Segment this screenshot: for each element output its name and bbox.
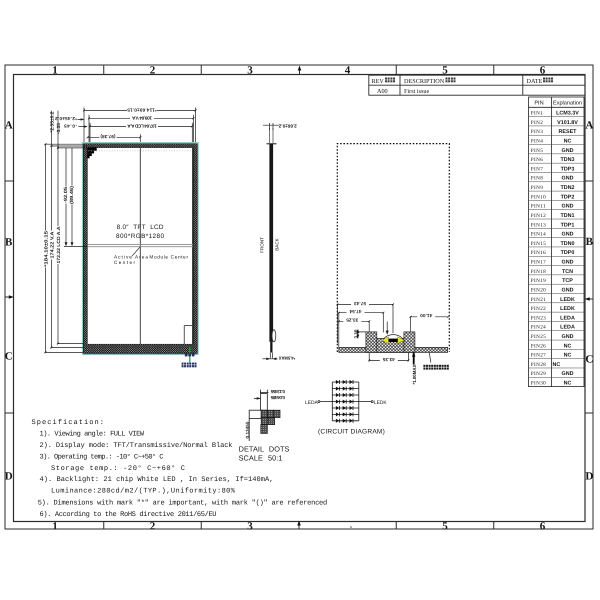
svg-text:8.0″ TFT LCD: 8.0″ TFT LCD <box>117 224 164 231</box>
svg-text:*2.35±0.2: *2.35±0.2 <box>49 111 54 132</box>
svg-text:PIN2: PIN2 <box>531 120 543 126</box>
svg-text:B: B <box>5 237 13 249</box>
svg-text:PIN13: PIN13 <box>531 222 546 228</box>
svg-text:0.13455: 0.13455 <box>245 421 250 438</box>
svg-text:PIN15: PIN15 <box>531 241 546 247</box>
svg-text:PIN4: PIN4 <box>531 138 543 144</box>
svg-text:LEDA: LEDA <box>560 315 575 321</box>
svg-text:TDP1: TDP1 <box>561 222 575 228</box>
svg-text:-0.45: -0.45 <box>64 123 77 128</box>
svg-text:PIN: PIN <box>534 101 543 107</box>
svg-text:PIN25: PIN25 <box>531 334 546 340</box>
svg-text:NC: NC <box>564 138 572 144</box>
svg-text:NC: NC <box>553 362 561 368</box>
svg-text:PIN6: PIN6 <box>531 157 543 163</box>
svg-text:PIN22: PIN22 <box>531 306 546 312</box>
svg-text:Module Center: Module Center <box>149 255 188 260</box>
svg-text:GND: GND <box>562 260 574 266</box>
svg-text:PIN28: PIN28 <box>531 362 546 368</box>
svg-text:*1.00MAX: *1.00MAX <box>412 364 417 385</box>
svg-text:PIN3: PIN3 <box>531 129 543 135</box>
svg-text:DATE: DATE <box>527 78 543 85</box>
svg-text:LEDA: LEDA <box>305 400 319 406</box>
svg-text:57.43: 57.43 <box>354 301 366 306</box>
svg-text:GND: GND <box>562 204 574 210</box>
svg-text:5: 5 <box>442 65 448 77</box>
svg-text:PIN19: PIN19 <box>531 278 546 284</box>
svg-text:172.22 LCD A.A: 172.22 LCD A.A <box>56 226 61 264</box>
svg-text:TCP: TCP <box>562 278 573 284</box>
svg-text:33.25: 33.25 <box>346 318 358 323</box>
svg-text:PIN7: PIN7 <box>531 166 543 172</box>
svg-text:PIN18: PIN18 <box>531 269 546 275</box>
svg-text:SCALE 50:1: SCALE 50:1 <box>239 453 283 462</box>
svg-text:6: 6 <box>540 65 546 77</box>
svg-text:0.04485: 0.04485 <box>270 395 285 400</box>
svg-text:PIN21: PIN21 <box>531 297 546 303</box>
svg-text:TCN: TCN <box>562 269 573 275</box>
svg-text:PIN29: PIN29 <box>531 371 546 377</box>
svg-text:Specification:: Specification: <box>32 418 105 427</box>
svg-text:3: 3 <box>247 521 253 533</box>
svg-text:TDN0: TDN0 <box>560 241 574 247</box>
svg-text:*4.5MAX: *4.5MAX <box>278 356 295 361</box>
svg-text:REV: REV <box>372 78 385 85</box>
svg-text:PIN11: PIN11 <box>531 204 546 210</box>
svg-text:(89.46): (89.46) <box>69 185 74 204</box>
svg-text:LEDK: LEDK <box>560 306 575 312</box>
svg-text:NC: NC <box>564 353 572 359</box>
svg-text:C: C <box>5 351 13 363</box>
svg-text:2: 2 <box>150 521 156 533</box>
svg-text:NC: NC <box>564 343 572 349</box>
svg-text:-92.05: -92.05 <box>63 186 68 203</box>
svg-text:107.64 LCD A.A: 107.64 LCD A.A <box>127 124 157 129</box>
svg-text:41.00: 41.00 <box>420 313 432 318</box>
svg-text:V101.8V: V101.8V <box>557 120 578 126</box>
svg-text:TDN2: TDN2 <box>560 185 574 191</box>
svg-text:LEDK: LEDK <box>560 297 575 303</box>
svg-text:3: 3 <box>247 65 253 77</box>
svg-text:TDN1: TDN1 <box>560 213 574 219</box>
svg-text:PIN1: PIN1 <box>531 111 543 117</box>
svg-text:*114.60±0.15: *114.60±0.15 <box>127 108 157 113</box>
svg-text:5). Dimensions with mark "*" a: 5). Dimensions with mark "*" are importa… <box>38 498 328 507</box>
svg-text:0.13455: 0.13455 <box>270 389 285 394</box>
svg-text:TDP0: TDP0 <box>561 250 575 256</box>
svg-text:-3.35: -3.35 <box>56 123 61 134</box>
svg-text:PIN8: PIN8 <box>531 176 543 182</box>
svg-text:47.54: 47.54 <box>349 309 361 314</box>
svg-text:Storage temp.: -20° C~+60° C: Storage temp.: -20° C~+60° C <box>51 465 185 473</box>
svg-text:(CIRCUIT DIAGRAM): (CIRCUIT DIAGRAM) <box>318 428 385 435</box>
svg-text:800*RGB*1280: 800*RGB*1280 <box>116 233 164 240</box>
svg-text:6). According to the RoHS dire: 6). According to the RoHS directive 2011… <box>40 510 217 519</box>
svg-text:LEDK: LEDK <box>374 400 388 406</box>
svg-text:109.64 V.A: 109.64 V.A <box>131 115 152 120</box>
svg-text:PIN12: PIN12 <box>531 213 546 219</box>
svg-text:GND: GND <box>562 287 574 293</box>
svg-text:43.35: 43.35 <box>382 357 394 362</box>
svg-text:*184.10±0.15: *184.10±0.15 <box>44 230 49 267</box>
svg-text:D: D <box>585 471 593 483</box>
svg-text:A: A <box>585 120 593 132</box>
svg-text:B: B <box>586 236 594 248</box>
svg-text:LCM3.3V: LCM3.3V <box>556 111 579 117</box>
svg-text:BACK: BACK <box>275 237 280 250</box>
svg-text:PIN16: PIN16 <box>531 250 546 256</box>
svg-text:Center: Center <box>114 260 135 265</box>
svg-text:TDN3: TDN3 <box>560 157 574 163</box>
svg-text:2). Display mode: TFT/Transmis: 2). Display mode: TFT/Transmissive/Norma… <box>40 441 233 450</box>
svg-text:PIN30: PIN30 <box>531 381 546 387</box>
svg-text:PIN27: PIN27 <box>531 353 546 359</box>
svg-text:D: D <box>5 471 13 483</box>
svg-text:PIN5: PIN5 <box>531 148 543 154</box>
svg-text:Luminance:280cd/m2/(TYP.),Unif: Luminance:280cd/m2/(TYP.),Uniformity:80% <box>51 487 236 496</box>
svg-text:2.66±0.2: 2.66±0.2 <box>278 123 296 128</box>
svg-text:First issue: First issue <box>404 88 430 95</box>
svg-text:A00: A00 <box>377 88 388 95</box>
svg-text:2: 2 <box>150 65 156 77</box>
svg-text:4). Backlight: 21 chip White L: 4). Backlight: 21 chip White LED , In Se… <box>40 475 274 484</box>
svg-text:PIN17: PIN17 <box>531 260 546 266</box>
svg-text:1: 1 <box>52 521 58 533</box>
svg-text:PIN9: PIN9 <box>531 185 543 191</box>
svg-text:DETAIL DOTS: DETAIL DOTS <box>239 444 290 453</box>
svg-text:Active Area: Active Area <box>114 254 148 259</box>
svg-text:A: A <box>5 120 13 132</box>
svg-text:TDP3: TDP3 <box>561 166 575 172</box>
svg-text:PIN26: PIN26 <box>531 343 546 349</box>
svg-text:6: 6 <box>540 521 546 533</box>
svg-text:PIN14: PIN14 <box>531 232 546 238</box>
svg-text:PIN10: PIN10 <box>531 194 546 200</box>
svg-text:GND: GND <box>562 148 574 154</box>
svg-text:GND: GND <box>562 232 574 238</box>
svg-text:FRONT: FRONT <box>260 237 265 253</box>
svg-text:DESCRIPTION: DESCRIPTION <box>404 78 445 85</box>
svg-text:GND: GND <box>562 334 574 340</box>
svg-text:5: 5 <box>442 521 448 533</box>
svg-text:3.10: 3.10 <box>354 329 359 338</box>
svg-text:PIN23: PIN23 <box>531 315 546 321</box>
svg-text:C: C <box>585 354 593 366</box>
svg-text:PIN20: PIN20 <box>531 287 546 293</box>
svg-text:Explanation: Explanation <box>553 100 582 107</box>
svg-text:(97.38): (97.38) <box>100 134 115 139</box>
svg-text:NC: NC <box>564 381 572 387</box>
svg-text:PIN24: PIN24 <box>531 325 546 331</box>
svg-text:LEDA: LEDA <box>560 325 575 331</box>
svg-text:GND: GND <box>562 371 574 377</box>
svg-text:1). Viewing angle: FULL VIEW: 1). Viewing angle: FULL VIEW <box>40 430 145 439</box>
svg-text:RESET: RESET <box>559 129 578 135</box>
svg-text:TDP2: TDP2 <box>561 194 575 200</box>
svg-text:1: 1 <box>52 65 58 77</box>
svg-text:GND: GND <box>562 176 574 182</box>
svg-text:174.22 V.A: 174.22 V.A <box>50 231 55 259</box>
svg-text:4: 4 <box>345 65 351 77</box>
svg-text:3). Operating temp.: -10° C~+5: 3). Operating temp.: -10° C~+50° C <box>40 452 164 461</box>
